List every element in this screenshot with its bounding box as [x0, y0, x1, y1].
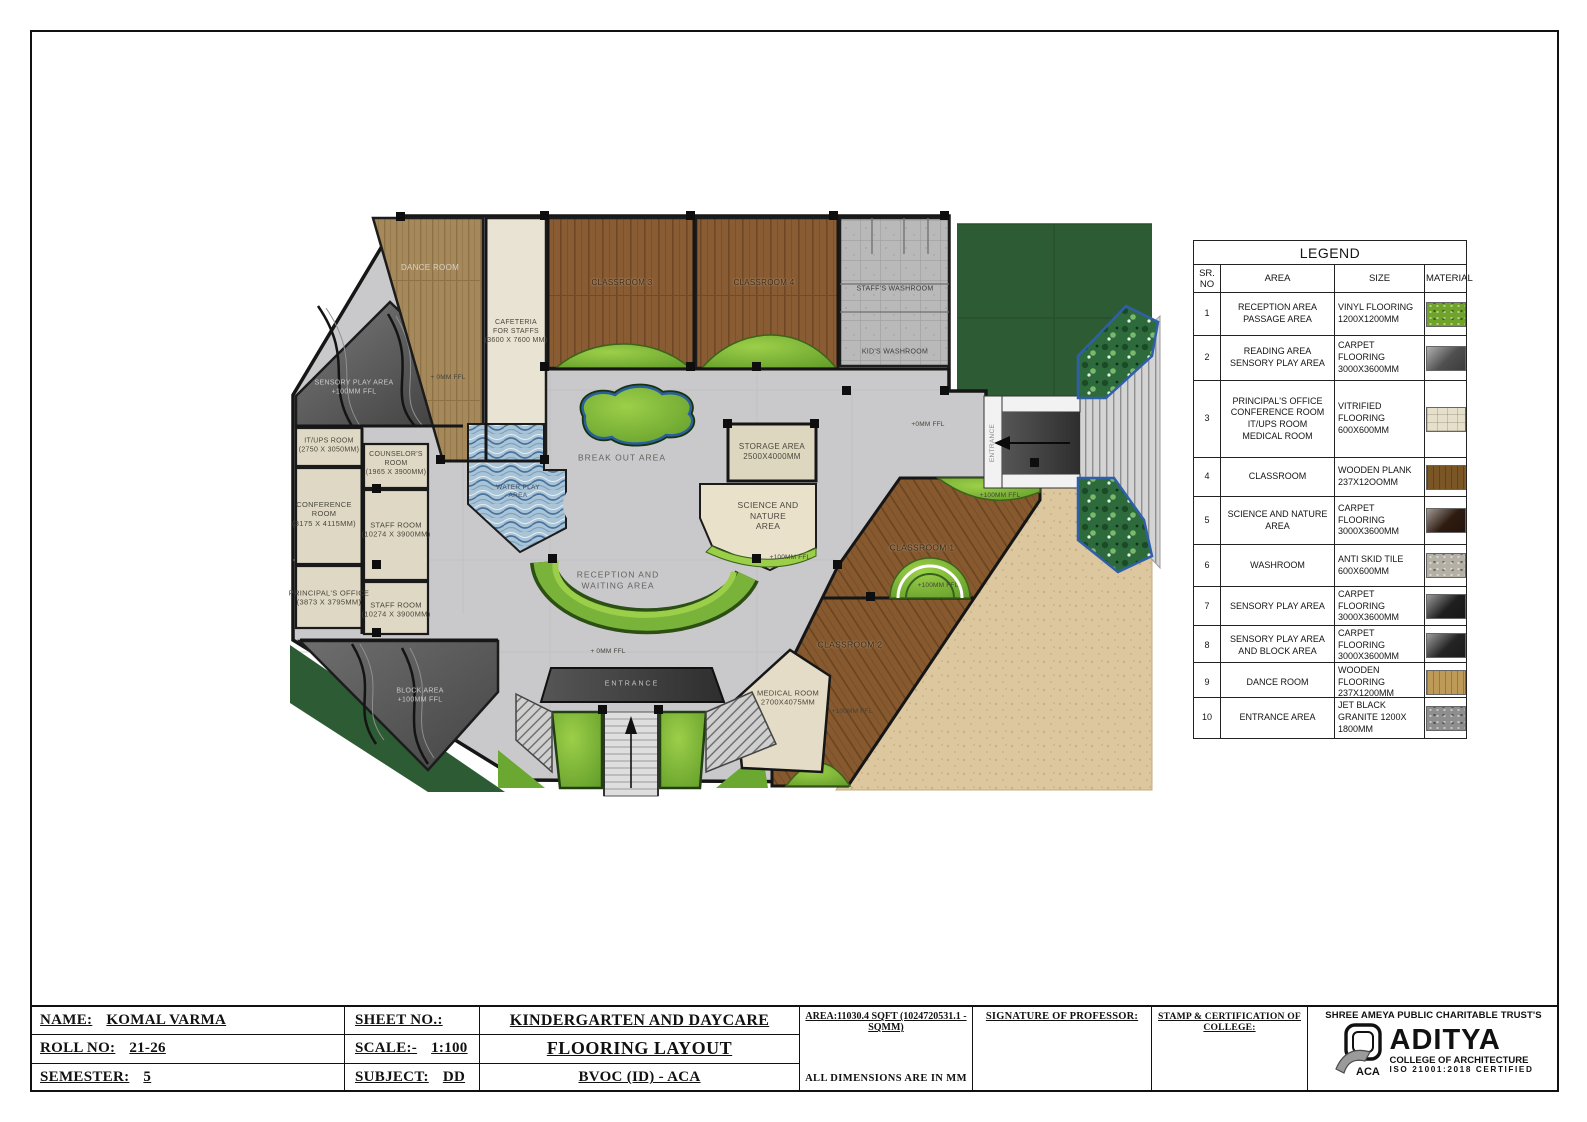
aca-logo-icon: ACA	[1334, 1023, 1384, 1077]
legend-size: JET BLACK GRANITE 1200X 1800MM	[1334, 698, 1424, 738]
legend-header-area: AREA	[1220, 265, 1334, 292]
legend-row: 3 PRINCIPAL'S OFFICE CONFERENCE ROOM IT/…	[1194, 380, 1466, 457]
subject-value: DD	[443, 1069, 465, 1086]
room-classroom-4	[696, 218, 838, 368]
legend-header-material: MATERIAL	[1424, 265, 1474, 292]
college-name: ADITYA	[1390, 1025, 1534, 1055]
material-swatch-carpet-dark1	[1426, 594, 1466, 619]
legend-size: ANTI SKID TILE 600X600MM	[1334, 545, 1424, 586]
legend-area: SENSORY PLAY AREA	[1220, 587, 1334, 626]
room-washrooms	[840, 218, 949, 366]
legend-row: 6 WASHROOM ANTI SKID TILE 600X600MM	[1194, 544, 1466, 586]
rollno-value: 21-26	[129, 1040, 166, 1057]
legend-area: CLASSROOM	[1220, 458, 1334, 496]
legend-srno: 7	[1194, 587, 1220, 626]
legend-area: DANCE ROOM	[1220, 663, 1334, 702]
name-value: KOMAL VARMA	[106, 1012, 226, 1029]
titleblock-stamp-cell: STAMP & CERTIFICATION OF COLLEGE:	[1152, 1007, 1308, 1092]
legend-row: 8 SENSORY PLAY AREA AND BLOCK AREA CARPE…	[1194, 625, 1466, 662]
legend-srno: 8	[1194, 626, 1220, 665]
legend-srno: 4	[1194, 458, 1220, 496]
course-title: BVOC (ID) - ACA	[578, 1069, 700, 1086]
material-swatch-granite	[1426, 706, 1466, 731]
legend-row: 7 SENSORY PLAY AREA CARPET FLOORING 3000…	[1194, 586, 1466, 625]
legend-srno: 2	[1194, 336, 1220, 380]
material-swatch-vitrified	[1426, 407, 1466, 432]
drawing-sheet: DANCE ROOM CAFETERIA FOR STAFFS (3600 X …	[0, 0, 1587, 1122]
area-break-out	[583, 387, 693, 444]
legend-srno: 5	[1194, 497, 1220, 544]
aca-acronym: ACA	[1356, 1066, 1380, 1077]
semester-value: 5	[143, 1069, 151, 1086]
subject-label: SUBJECT:	[355, 1069, 429, 1086]
legend-srno: 1	[1194, 293, 1220, 335]
area-note: AREA:11030.4 SQFT (1024720531.1 -SQMM)	[800, 1011, 972, 1033]
rollno-label: ROLL NO:	[40, 1040, 115, 1057]
legend-header-size: SIZE	[1334, 265, 1424, 292]
legend-title: LEGEND	[1194, 241, 1466, 264]
titleblock-student-info: NAME:KOMAL VARMA ROLL NO:21-26 SEMESTER:…	[30, 1007, 345, 1092]
titleblock-project-titles: KINDERGARTEN AND DAYCARE FLOORING LAYOUT…	[480, 1007, 800, 1092]
drawing-title: FLOORING LAYOUT	[547, 1038, 732, 1059]
legend-row: 4 CLASSROOM WOODEN PLANK 237X12OOMM	[1194, 457, 1466, 496]
legend-header-row: SR. NO AREA SIZE MATERIAL	[1194, 264, 1466, 292]
material-swatch-antiskid	[1426, 553, 1466, 578]
legend-area: READING AREA SENSORY PLAY AREA	[1220, 336, 1334, 380]
legend-size: WOODEN PLANK 237X12OOMM	[1334, 458, 1424, 496]
title-block: NAME:KOMAL VARMA ROLL NO:21-26 SEMESTER:…	[30, 1005, 1557, 1092]
titleblock-signature-cell: SIGNATURE OF PROFESSOR:	[973, 1007, 1152, 1092]
legend-size: VITRIFIED FLOORING 600X600MM	[1334, 381, 1424, 457]
material-swatch-wood-plank	[1426, 465, 1466, 490]
material-swatch-carpet-dark2	[1426, 633, 1466, 658]
legend-area: PRINCIPAL'S OFFICE CONFERENCE ROOM IT/UP…	[1220, 381, 1334, 457]
stamp-label: STAMP & CERTIFICATION OF COLLEGE:	[1152, 1011, 1307, 1033]
scale-value: 1:100	[431, 1040, 468, 1057]
legend-area: WASHROOM	[1220, 545, 1334, 586]
titleblock-sheet-info: SHEET NO.: SCALE:-1:100 SUBJECT:DD	[345, 1007, 480, 1092]
material-swatch-carpet-brown	[1426, 508, 1466, 533]
entrance-east	[984, 396, 1080, 488]
legend-row: 9 DANCE ROOM WOODEN FLOORING 237X1200MM	[1194, 662, 1466, 697]
name-label: NAME:	[40, 1012, 92, 1029]
room-storage	[728, 424, 816, 481]
legend-size: VINYL FLOORING 1200X1200MM	[1334, 293, 1424, 335]
legend-area: SCIENCE AND NATURE AREA	[1220, 497, 1334, 544]
legend-row: 5 SCIENCE AND NATURE AREA CARPET FLOORIN…	[1194, 496, 1466, 544]
room-classroom-3	[548, 218, 694, 368]
legend-srno: 10	[1194, 698, 1220, 738]
legend-header-srno: SR. NO	[1194, 265, 1220, 292]
legend-area: SENSORY PLAY AREA AND BLOCK AREA	[1220, 626, 1334, 665]
legend-srno: 9	[1194, 663, 1220, 702]
college-iso: ISO 21001:2018 CERTIFIED	[1390, 1066, 1534, 1075]
legend-row: 10 ENTRANCE AREA JET BLACK GRANITE 1200X…	[1194, 697, 1466, 738]
legend-row: 2 READING AREA SENSORY PLAY AREA CARPET …	[1194, 335, 1466, 380]
semester-label: SEMESTER:	[40, 1069, 129, 1086]
legend-srno: 3	[1194, 381, 1220, 457]
material-swatch-carpet-gray	[1426, 346, 1466, 371]
material-swatch-vinyl	[1426, 302, 1466, 327]
trust-name: SHREE AMEYA PUBLIC CHARITABLE TRUST'S	[1314, 1010, 1553, 1021]
legend-row: 1 RECEPTION AREA PASSAGE AREA VINYL FLOO…	[1194, 292, 1466, 335]
sheetno-label: SHEET NO.:	[355, 1012, 443, 1029]
legend-srno: 6	[1194, 545, 1220, 586]
legend-size: WOODEN FLOORING 237X1200MM	[1334, 663, 1424, 702]
legend-size: CARPET FLOORING 3000X3600MM	[1334, 336, 1424, 380]
legend-size: CARPET FLOORING 3000X3600MM	[1334, 497, 1424, 544]
material-swatch-wood-floor	[1426, 670, 1466, 695]
legend-area: ENTRANCE AREA	[1220, 698, 1334, 738]
dimensions-note: ALL DIMENSIONS ARE IN MM	[800, 1073, 972, 1084]
project-title: KINDERGARTEN AND DAYCARE	[510, 1012, 769, 1030]
signature-label: SIGNATURE OF PROFESSOR:	[973, 1011, 1151, 1022]
legend-area: RECEPTION AREA PASSAGE AREA	[1220, 293, 1334, 335]
titleblock-area-notes: AREA:11030.4 SQFT (1024720531.1 -SQMM) A…	[800, 1007, 973, 1092]
titleblock-college-branding: SHREE AMEYA PUBLIC CHARITABLE TRUST'S AC…	[1308, 1007, 1557, 1092]
legend-size: CARPET FLOORING 3000X3600MM	[1334, 626, 1424, 665]
legend-size: CARPET FLOORING 3000X3600MM	[1334, 587, 1424, 626]
scale-label: SCALE:-	[355, 1040, 417, 1057]
legend-table: LEGEND SR. NO AREA SIZE MATERIAL 1 RECEP…	[1193, 240, 1467, 739]
